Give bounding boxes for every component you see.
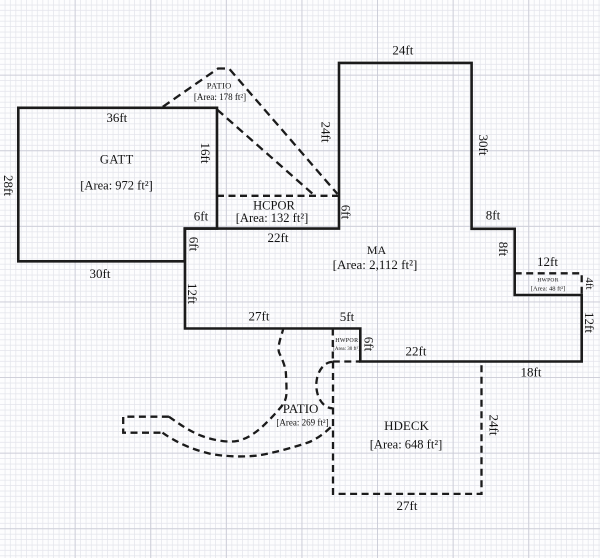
svg-text:PATIO: PATIO <box>207 81 232 91</box>
svg-text:HWPOR: HWPOR <box>537 278 558 284</box>
svg-text:22ft: 22ft <box>406 344 427 359</box>
svg-text:MA: MA <box>367 243 387 257</box>
svg-text:30ft: 30ft <box>90 266 111 281</box>
svg-text:6ft: 6ft <box>187 237 202 252</box>
svg-text:6ft: 6ft <box>194 209 209 224</box>
svg-text:[Area: 132 ft²]: [Area: 132 ft²] <box>236 211 308 225</box>
svg-text:[Area: 2,112 ft²]: [Area: 2,112 ft²] <box>333 257 418 272</box>
svg-text:12ft: 12ft <box>537 254 558 269</box>
svg-text:HWPOR: HWPOR <box>335 338 358 344</box>
svg-text:HDECK: HDECK <box>384 418 429 433</box>
svg-text:[Area: 269 ft²]: [Area: 269 ft²] <box>276 418 328 428</box>
svg-text:5ft: 5ft <box>340 309 355 324</box>
svg-text:6ft: 6ft <box>339 205 354 220</box>
svg-text:8ft: 8ft <box>496 242 511 257</box>
svg-text:24ft: 24ft <box>487 415 502 436</box>
svg-text:[Area: 648 ft²]: [Area: 648 ft²] <box>370 438 442 452</box>
svg-text:24ft: 24ft <box>319 122 334 143</box>
svg-text:PATIO: PATIO <box>283 401 319 416</box>
svg-text:[Area: 972 ft²]: [Area: 972 ft²] <box>80 179 152 193</box>
svg-text:18ft: 18ft <box>521 365 542 380</box>
svg-text:[Area: 48 ft²]: [Area: 48 ft²] <box>531 286 565 293</box>
svg-text:[Area: 178 ft²]: [Area: 178 ft²] <box>194 92 246 102</box>
svg-text:28ft: 28ft <box>1 175 16 196</box>
svg-text:27ft: 27ft <box>249 309 270 324</box>
svg-text:12ft: 12ft <box>582 312 597 333</box>
svg-text:30ft: 30ft <box>476 135 491 156</box>
svg-text:22ft: 22ft <box>268 230 289 245</box>
svg-text:8ft: 8ft <box>486 208 501 223</box>
svg-text:6ft: 6ft <box>362 337 377 352</box>
svg-text:27ft: 27ft <box>397 498 418 513</box>
svg-text:4ft: 4ft <box>583 277 595 289</box>
svg-text:[Area: 30 ft²]: [Area: 30 ft²] <box>333 346 360 352</box>
svg-text:16ft: 16ft <box>198 143 213 164</box>
svg-text:GATT: GATT <box>100 153 134 167</box>
svg-text:24ft: 24ft <box>392 43 413 58</box>
svg-text:12ft: 12ft <box>185 283 200 304</box>
svg-text:36ft: 36ft <box>106 110 127 125</box>
